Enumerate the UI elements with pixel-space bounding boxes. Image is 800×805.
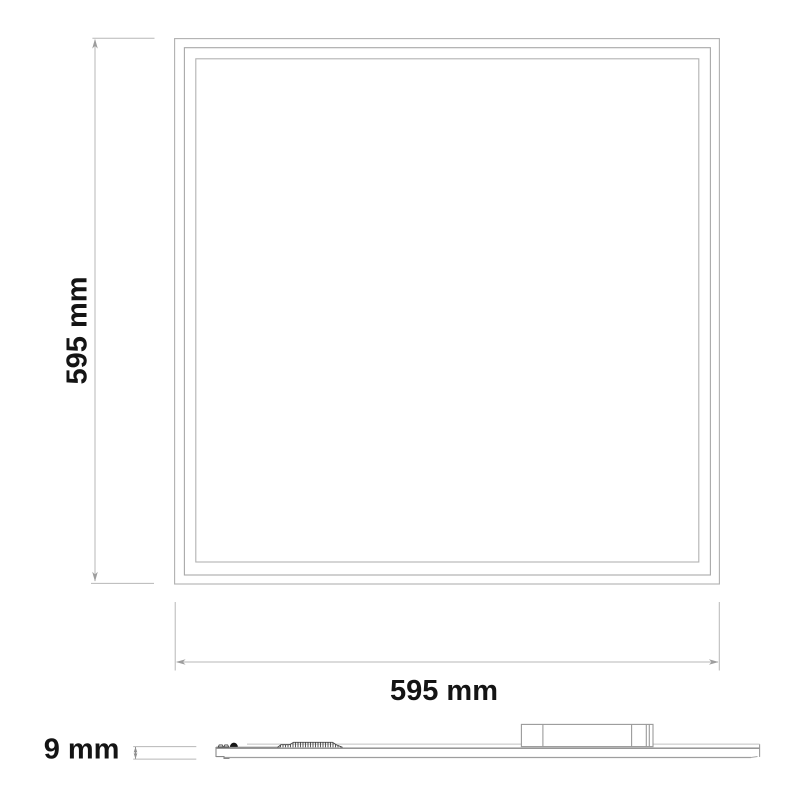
svg-text:595 mm: 595 mm [62, 276, 94, 384]
svg-text:9 mm: 9 mm [44, 734, 120, 766]
svg-text:595 mm: 595 mm [390, 675, 498, 707]
